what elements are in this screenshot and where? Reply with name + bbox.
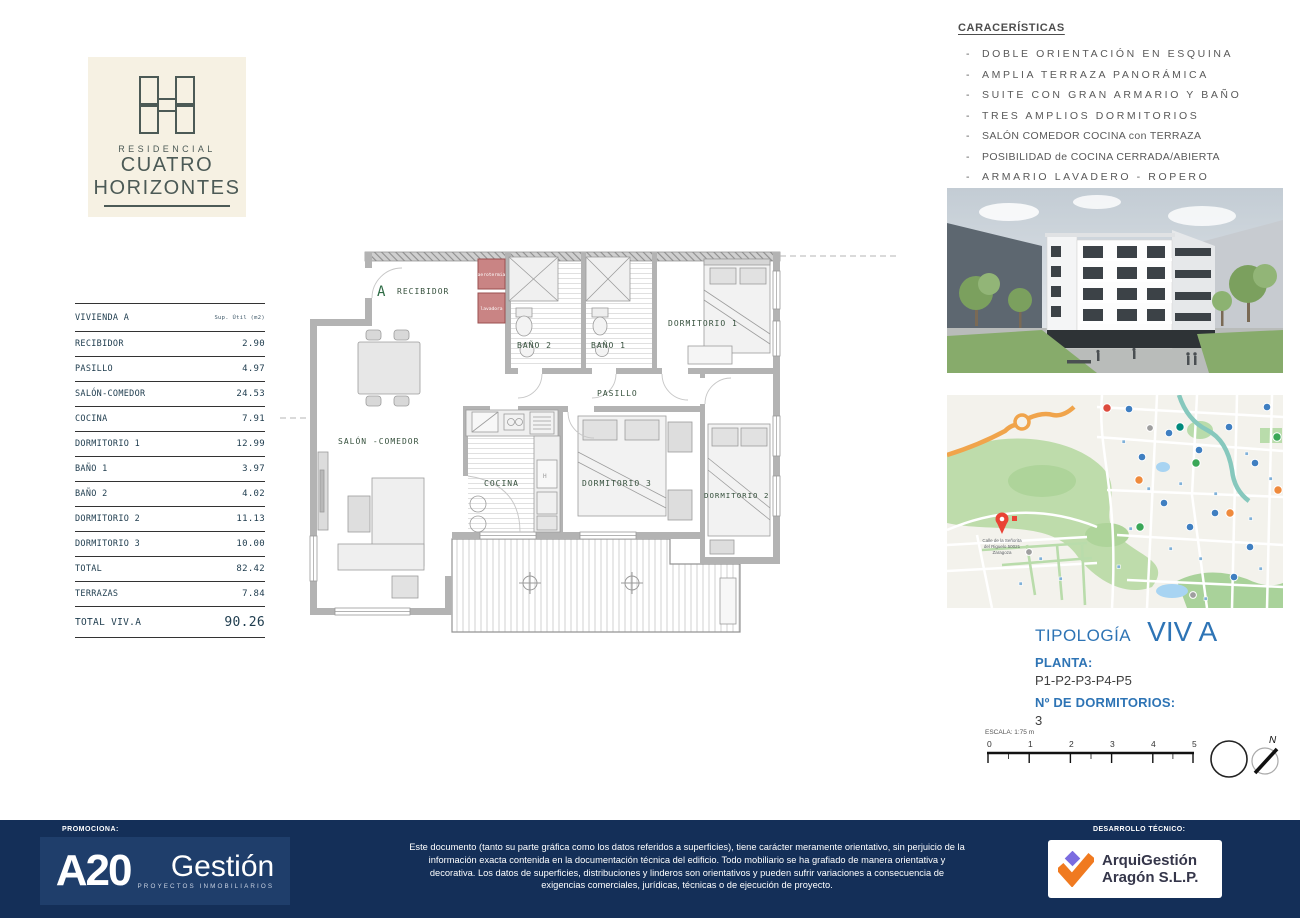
brand-name-line2: HORIZONTES [93,177,240,200]
label-dormitorio3: DORMITORIO 3 [582,479,652,488]
svg-text:0: 0 [987,739,992,749]
cuatro-horizontes-icon [134,75,200,135]
table-row: SALÓN-COMEDOR24.53 [75,382,265,407]
surface-table: VIVIENDA ASup. Útil (m2) RECIBIDOR2.90 P… [75,303,265,638]
unit-marker: A [377,284,386,300]
table-row: DORMITORIO 310.00 [75,532,265,557]
list-item: -ARMARIO LAVADERO - ROPERO [958,167,1250,188]
table-row: RECIBIDOR2.90 [75,332,265,357]
pin-address-line3: Zaragoza [992,550,1012,555]
table-row: TERRAZAS7.84 [75,582,265,607]
list-item: -SALÓN COMEDOR COCINA con TERRAZA [958,126,1250,147]
arquigestion-logo: ArquiGestión Aragón S.L.P. [1048,840,1222,898]
brochure-page: RESIDENCIAL CUATRO HORIZONTES CARACERÍST… [0,0,1300,918]
list-item: -AMPLIA TERRAZA PANORÁMICA [958,65,1250,86]
label-bano1: BAÑO 1 [591,340,626,350]
a20-logo-text: A20 [56,853,131,889]
table-row: TOTAL82.42 [75,557,265,582]
caracteristicas-section: CARACERÍSTICAS -DOBLE ORIENTACIÓN EN ESQ… [958,22,1250,188]
floorplan-drawing: aerotermia lavadora RECIBIDOR [280,246,900,638]
table-row-total: TOTAL VIV.A90.26 [75,607,265,638]
label-hob: H [543,473,548,480]
scale-label: ESCALA: 1:75 m [985,729,1200,736]
desarrollo-label: DESARROLLO TÉCNICO: [1093,826,1185,833]
arquigestion-icon [1058,851,1094,887]
footer: PROMOCIONA: A20 Gestión PROYECTOS INMOBI… [0,820,1300,918]
scale-bar: ESCALA: 1:75 m 0 1 2 3 4 5 [985,729,1200,771]
list-item: -TRES AMPLIOS DORMITORIOS [958,106,1250,127]
list-item: -SUITE CON GRAN ARMARIO Y BAÑO [958,85,1250,106]
caracteristicas-list: -DOBLE ORIENTACIÓN EN ESQUINA -AMPLIA TE… [958,44,1250,188]
label-cocina: COCINA [484,479,519,488]
promociona-label: PROMOCIONA: [62,826,119,833]
dormitorios-value: 3 [1035,713,1217,728]
brand-underline [104,205,230,207]
svg-text:2: 2 [1069,739,1074,749]
utility-boxes: aerotermia lavadora [478,259,506,323]
svg-text:5: 5 [1192,739,1197,749]
location-map: Calle de la Señorita del Riguelo 50021 Z… [947,395,1283,608]
label-bano2: BAÑO 2 [517,340,552,350]
svg-text:3: 3 [1110,739,1115,749]
planta-label: PLANTA: [1035,655,1217,670]
table-row: PASILLO4.97 [75,357,265,382]
north-compass: N [1205,731,1295,788]
planta-value: P1-P2-P3-P4-P5 [1035,673,1217,688]
table-row: COCINA7.91 [75,407,265,432]
svg-text:4: 4 [1151,739,1156,749]
tipologia-label: TIPOLOGÍA [1035,626,1131,646]
a20-subtitle: PROYECTOS INMOBILIARIOS [138,883,275,890]
svg-text:1: 1 [1028,739,1033,749]
building-render-image [947,188,1283,373]
arqui-name-line1: ArquiGestión [1102,852,1198,869]
dormitorios-label: Nº DE DORMITORIOS: [1035,695,1217,710]
floorplan: aerotermia lavadora RECIBIDOR [280,246,900,638]
table-row: DORMITORIO 211.13 [75,507,265,532]
pin-address-line2: del Riguelo 50021 [984,544,1021,549]
brand-name-line1: CUATRO [121,154,214,177]
table-row: DORMITORIO 112.99 [75,432,265,457]
tipologia-value: VIV A [1147,616,1217,648]
lavadora-label: lavadora [480,306,502,312]
list-item: -POSIBILIDAD de COCINA CERRADA/ABIERTA [958,147,1250,168]
map-image: Calle de la Señorita del Riguelo 50021 Z… [947,395,1283,608]
label-dormitorio1: DORMITORIO 1 [668,319,738,328]
label-recibidor: RECIBIDOR [397,287,449,296]
tipologia-block: TIPOLOGÍA VIV A PLANTA: P1-P2-P3-P4-P5 N… [1035,616,1217,728]
brand-residencial: RESIDENCIAL [118,144,215,154]
north-arrow-icon: N [1205,731,1295,783]
caracteristicas-title: CARACERÍSTICAS [958,22,1250,34]
a20-gestion-logo: A20 Gestión PROYECTOS INMOBILIARIOS [40,837,290,905]
pin-address-line1: Calle de la Señorita [982,538,1022,543]
scale-ruler: 0 1 2 3 4 5 [985,738,1197,766]
label-pasillo: PASILLO [597,389,638,398]
aerotermia-label: aerotermia [478,272,506,278]
legal-disclaimer: Este documento (tanto su parte gráfica c… [408,841,966,892]
residencial-logo: RESIDENCIAL CUATRO HORIZONTES [88,57,246,217]
building-render [947,188,1283,373]
label-salon: SALÓN -COMEDOR [338,435,419,446]
arqui-name-line2: Aragón S.L.P. [1102,869,1198,886]
svg-text:N: N [1269,735,1277,746]
table-row: BAÑO 13.97 [75,457,265,482]
table-header: VIVIENDA ASup. Útil (m2) [75,303,265,332]
a20-gestion-text: Gestión [171,853,274,880]
label-dormitorio2: DORMITORIO 2 [704,491,769,500]
list-item: -DOBLE ORIENTACIÓN EN ESQUINA [958,44,1250,65]
table-row: BAÑO 24.02 [75,482,265,507]
